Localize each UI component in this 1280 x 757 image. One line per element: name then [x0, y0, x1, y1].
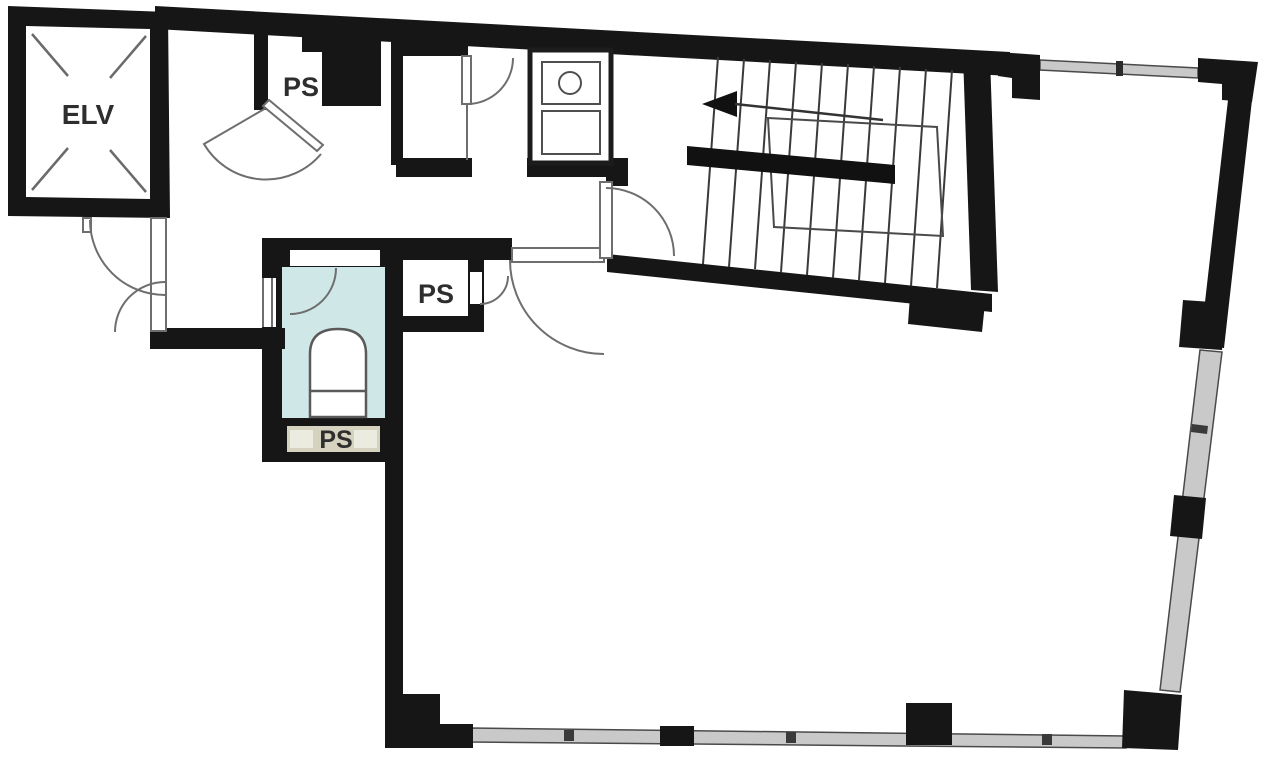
wall-closet-bottom: [396, 158, 472, 177]
wall-corner-bottom-left: [385, 694, 473, 748]
wall-post-top-right: [998, 52, 1040, 100]
stair-direction-line: [735, 104, 883, 120]
window-mullion-bottom-2: [786, 732, 796, 743]
ps-top-door-swing: [204, 108, 321, 179]
ps-top-label: PS: [283, 72, 319, 102]
main-room-door-leaf: [512, 248, 604, 262]
ps-mid-door-opening: [470, 272, 482, 304]
ps-mid-door-swing: [480, 276, 508, 304]
stair-direction-arrow-icon: [702, 91, 737, 117]
wall-ps-top-left: [254, 26, 268, 110]
window-mullion-top: [1116, 61, 1123, 76]
wall-entry-to-toilet: [150, 328, 285, 349]
sink-lower-basin: [542, 111, 600, 154]
floor-plan-drawing: ELV PS PS PS: [0, 0, 1280, 757]
toilet-door-opening: [290, 250, 380, 266]
wall-corner-bottom-right: [1122, 690, 1182, 750]
floor-plan: ELV PS PS PS: [0, 0, 1280, 757]
stair-hall-door-leaf: [600, 182, 612, 258]
wall-post-bottom-1: [660, 726, 694, 746]
ps-top-door-leaf: [263, 100, 323, 151]
entrance-door-frame: [151, 218, 166, 331]
wall-ps-mid-bottom: [403, 316, 484, 332]
toilet-bowl: [310, 329, 366, 417]
wall-main-room-left: [385, 238, 403, 700]
wall-right-window-post: [1170, 495, 1206, 539]
wall-right-step-post: [1179, 300, 1226, 350]
main-room-door-swing: [510, 260, 604, 354]
ps-bottom-panel-left: [290, 430, 313, 448]
window-mullion-bottom-3: [1042, 734, 1052, 745]
staircase: [687, 57, 952, 288]
toilet-fixture: [310, 329, 366, 417]
stair-hall-door-swing: [606, 188, 674, 256]
walls: [8, 6, 1258, 750]
stair-landing-bar: [687, 146, 895, 184]
wall-closet-left: [391, 40, 403, 165]
window-mullion-bottom-1: [564, 730, 574, 741]
kitchen-sink-unit: [530, 50, 611, 163]
ps-bottom-panel-right: [354, 430, 377, 448]
wall-post-bottom-2: [906, 703, 952, 745]
wall-block-center-top: [322, 28, 381, 106]
wall-toilet-left: [262, 238, 282, 462]
ps-middle-label: PS: [418, 279, 454, 309]
elevator-label: ELV: [62, 99, 115, 130]
toilet-window-opening: [259, 278, 276, 327]
wall-corner-top-right: [1198, 58, 1258, 102]
closet-door-swing: [467, 58, 513, 104]
closet-door-leaf: [462, 56, 471, 104]
wall-stair-right: [963, 55, 998, 292]
ps-bottom-label: PS: [319, 426, 352, 454]
wall-hall-to-door: [385, 238, 512, 260]
sink-drain-icon: [559, 72, 581, 94]
